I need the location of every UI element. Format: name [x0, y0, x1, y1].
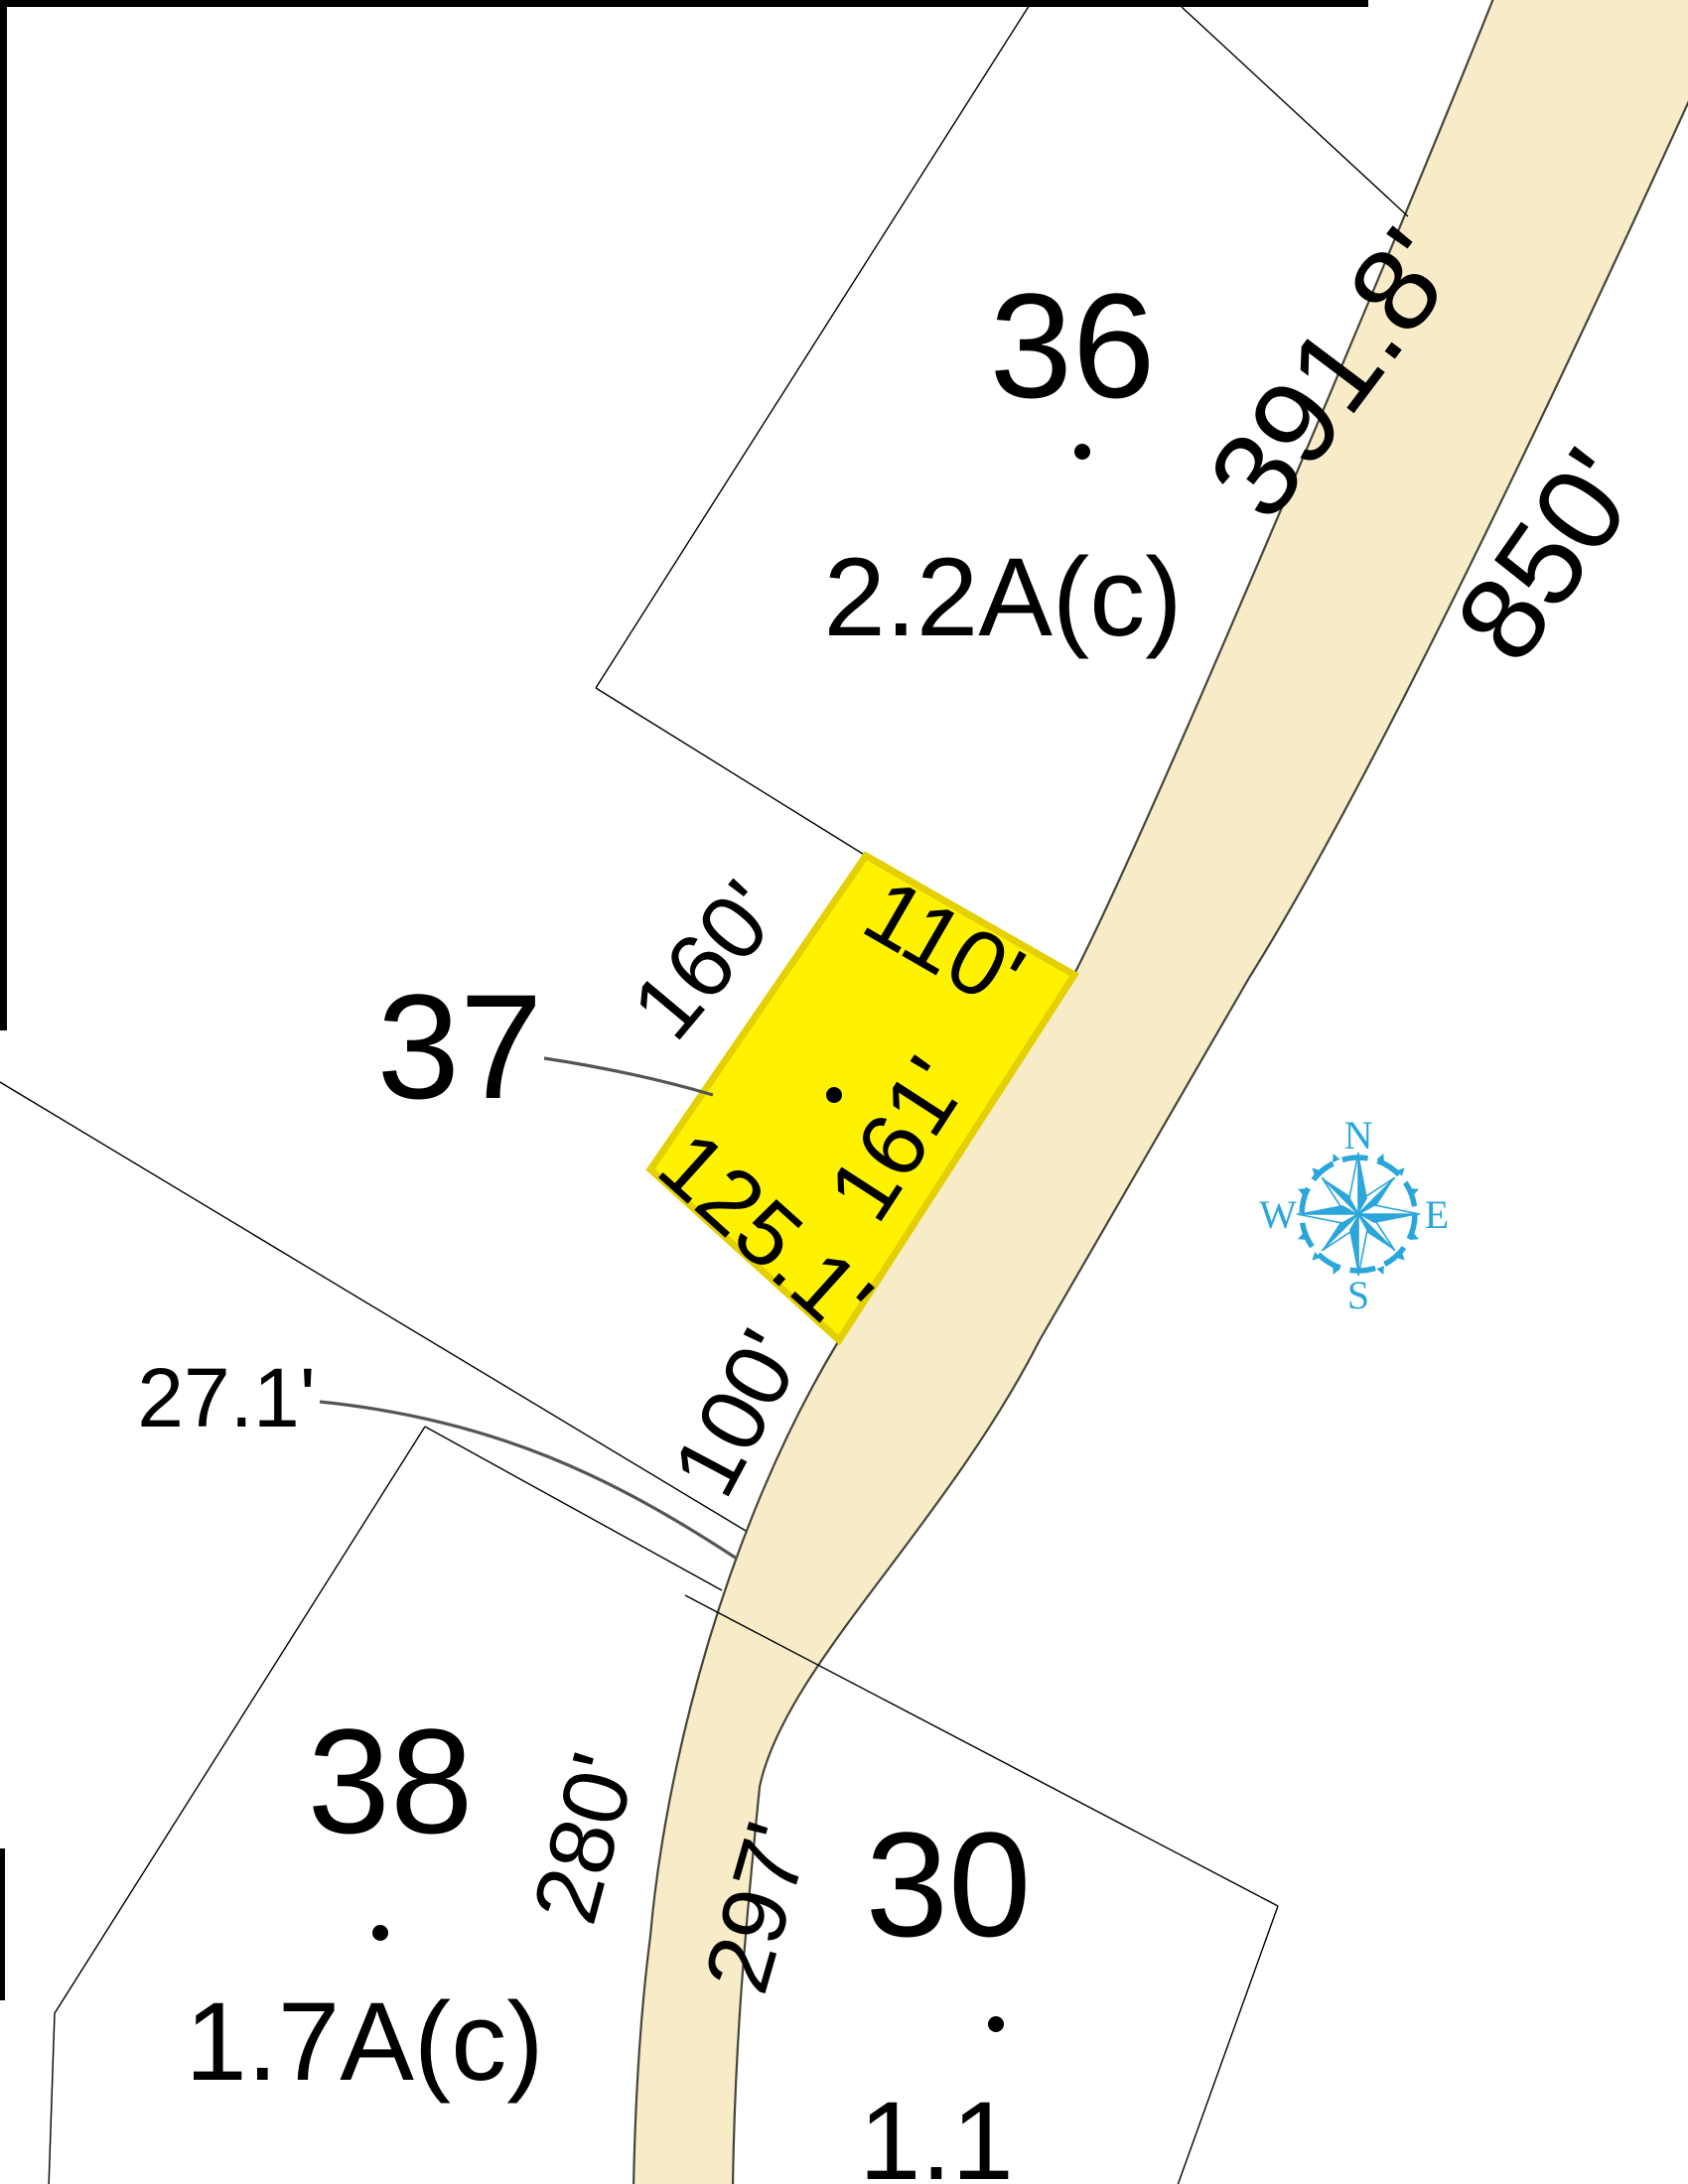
- parcel-map: 36 37 38 30 2.2A(c) 1.7A(c) 1.1 391.8' 8…: [0, 0, 1688, 2184]
- compass-south-letter: S: [1347, 1273, 1369, 1317]
- compass-east-letter: E: [1425, 1192, 1449, 1237]
- compass-rose: N E S W: [1259, 1113, 1449, 1317]
- lot37-leader-line: [544, 1058, 713, 1095]
- lot36-north-boundary: [1182, 7, 1408, 216]
- dim-27-label: 27.1': [137, 1351, 316, 1444]
- lot38-centroid-dot: [372, 1925, 388, 1941]
- lot37-centroid-dot: [826, 1087, 842, 1103]
- lot36-centroid-dot: [1074, 444, 1090, 460]
- map-top-border: [0, 0, 1368, 7]
- compass-north-letter: N: [1344, 1113, 1373, 1158]
- map-left-border: [0, 0, 7, 1030]
- map-left-border-lower: [0, 1848, 5, 2000]
- lot36-label: 36: [990, 262, 1156, 429]
- lot36-area-label: 2.2A(c): [824, 535, 1183, 659]
- dim-280-label: 280': [514, 1743, 656, 1934]
- lot36-south-boundary: [596, 688, 866, 856]
- lot38-area-label: 1.7A(c): [186, 1979, 544, 2104]
- lot30-area-label: 1.1: [859, 2079, 1014, 2184]
- lot30-centroid-dot: [988, 2016, 1004, 2032]
- lot37-south-boundary: [0, 1082, 746, 1531]
- lot37-label: 37: [377, 963, 543, 1130]
- lot30-east-boundary: [1177, 1906, 1278, 2184]
- lot30-label: 30: [866, 1801, 1032, 1968]
- lot38-label: 38: [308, 1698, 474, 1864]
- compass-west-letter: W: [1259, 1192, 1297, 1237]
